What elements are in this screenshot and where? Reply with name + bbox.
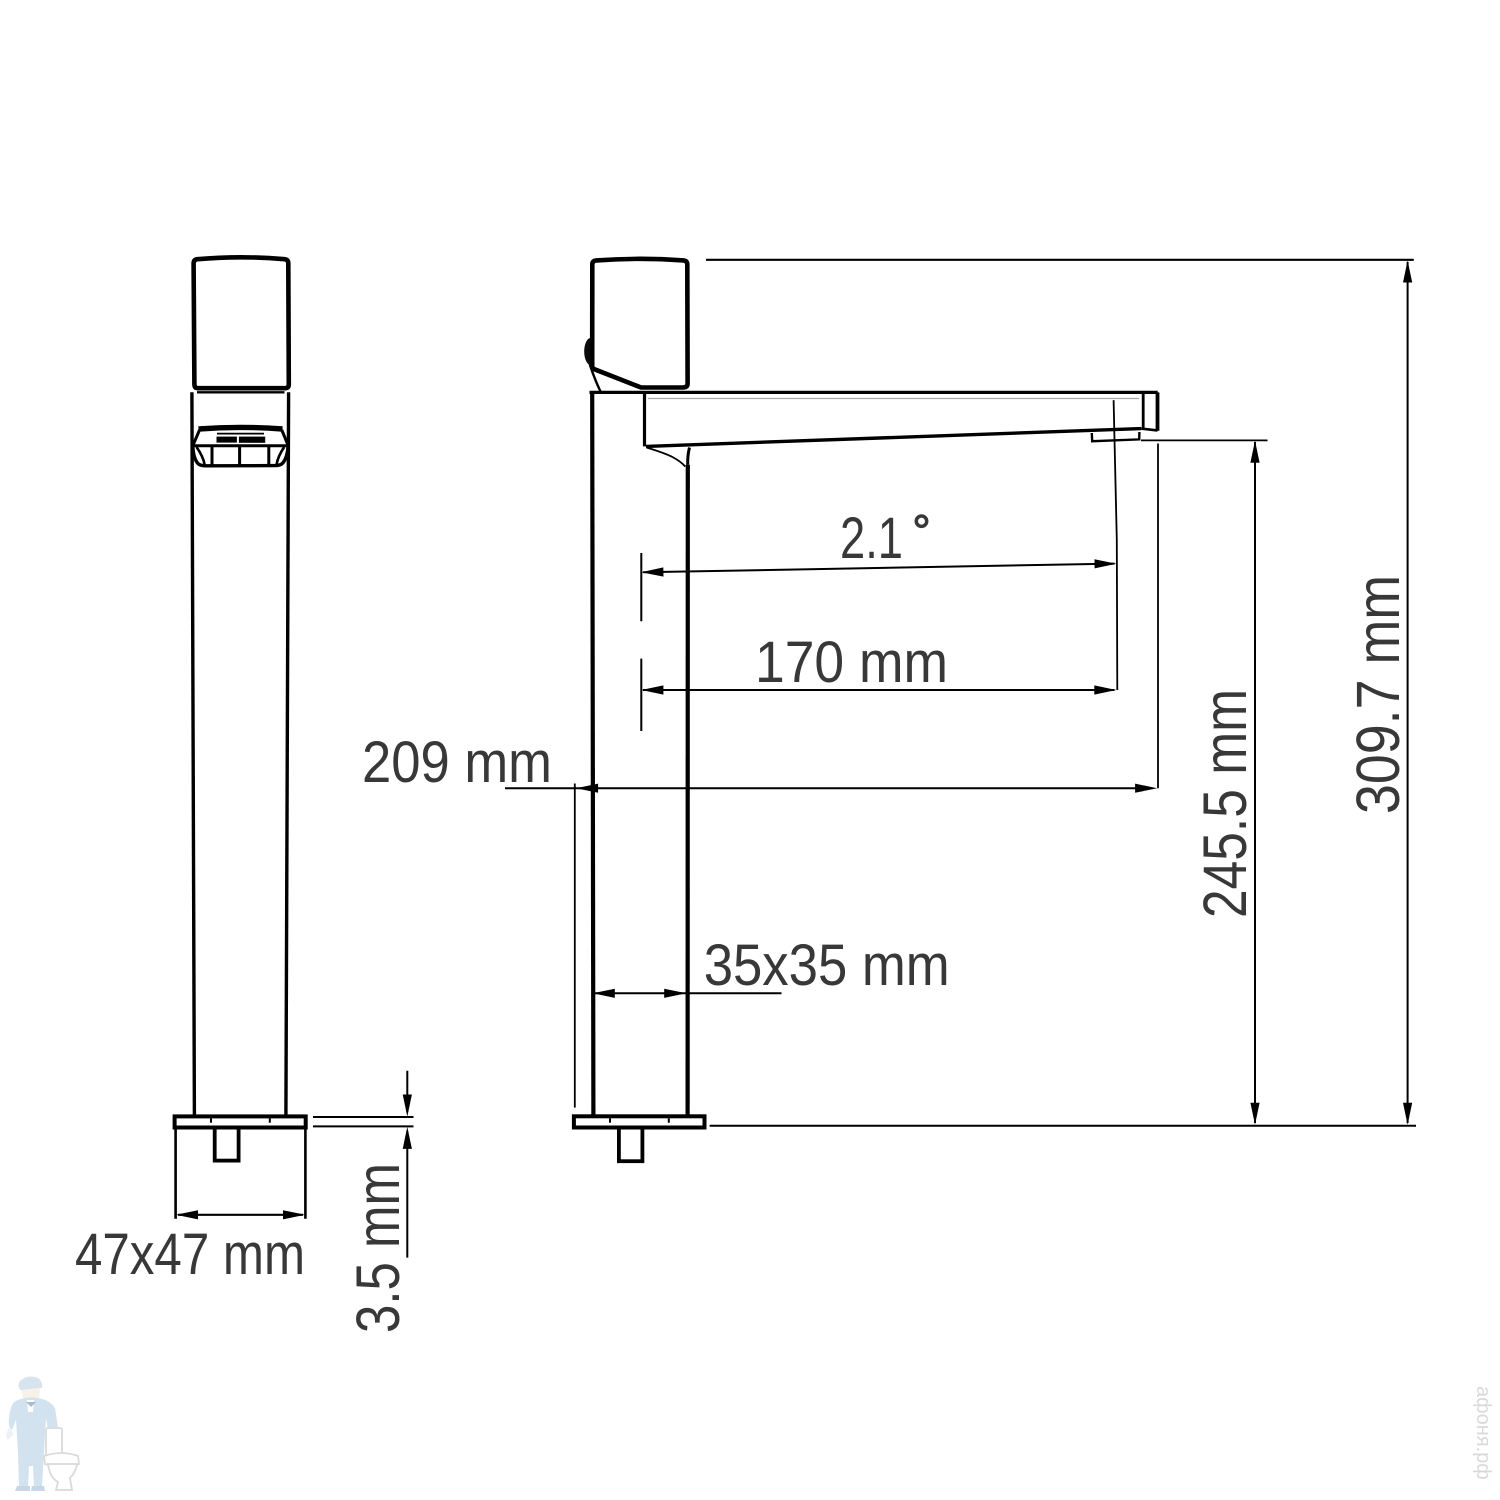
svg-text:2.1: 2.1 [840, 506, 903, 571]
svg-text:245.5 mm: 245.5 mm [1191, 689, 1259, 918]
svg-text:170 mm: 170 mm [755, 630, 948, 695]
svg-text:309.7 mm: 309.7 mm [1344, 575, 1412, 814]
svg-text:209 mm: 209 mm [362, 730, 552, 795]
svg-text:35x35 mm: 35x35 mm [704, 933, 950, 998]
svg-text:47x47 mm: 47x47 mm [75, 1222, 305, 1287]
svg-text:афоня.рф: афоня.рф [1472, 1386, 1494, 1480]
svg-text:3.5 mm: 3.5 mm [344, 1163, 412, 1333]
